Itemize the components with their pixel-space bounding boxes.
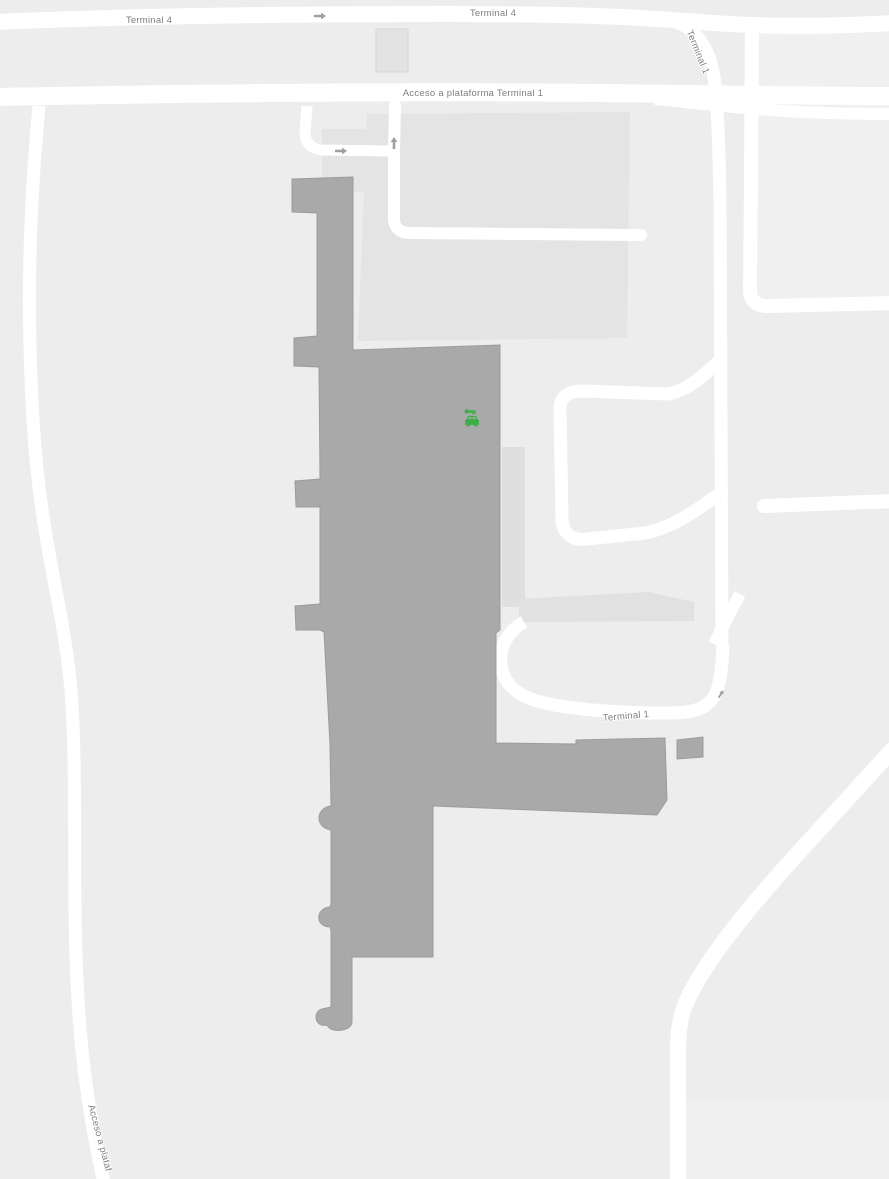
car-rental-car-window xyxy=(469,417,472,419)
apron-strip-lower xyxy=(519,592,694,622)
lighter-land-bottom-right xyxy=(686,1100,889,1179)
road-right-horizontal xyxy=(764,501,889,506)
car-rental-key-shaft xyxy=(467,410,475,412)
terminal-building-annex[interactable] xyxy=(677,737,703,759)
car-rental-car-wheel xyxy=(474,425,477,427)
map-canvas[interactable]: Terminal 4 Terminal 4 Terminal 1 Acceso … xyxy=(0,0,889,1179)
small-building-footprint xyxy=(376,29,408,72)
road-middle-loop xyxy=(560,362,724,539)
car-rental-key-tooth xyxy=(472,412,474,414)
map-svg: Terminal 4 Terminal 4 Terminal 1 Acceso … xyxy=(0,0,889,1179)
road-terminal1-loop xyxy=(501,622,723,713)
road-left-long xyxy=(29,106,104,1179)
apron-right-of-terminal xyxy=(502,447,525,607)
car-rental-car-window xyxy=(473,417,476,419)
road-terminal1-ramp xyxy=(676,22,722,645)
car-rental-car-wheel xyxy=(467,425,470,427)
road-label-acceso-plataforma: Acceso a plataforma Terminal 1 xyxy=(403,88,543,99)
road-label-terminal4-left: Terminal 4 xyxy=(126,15,172,26)
lighter-land-block xyxy=(758,27,889,300)
road-label-terminal4-center: Terminal 4 xyxy=(470,8,516,19)
car-rental-key-tooth xyxy=(475,412,477,414)
car-rental-car-body xyxy=(465,420,479,425)
